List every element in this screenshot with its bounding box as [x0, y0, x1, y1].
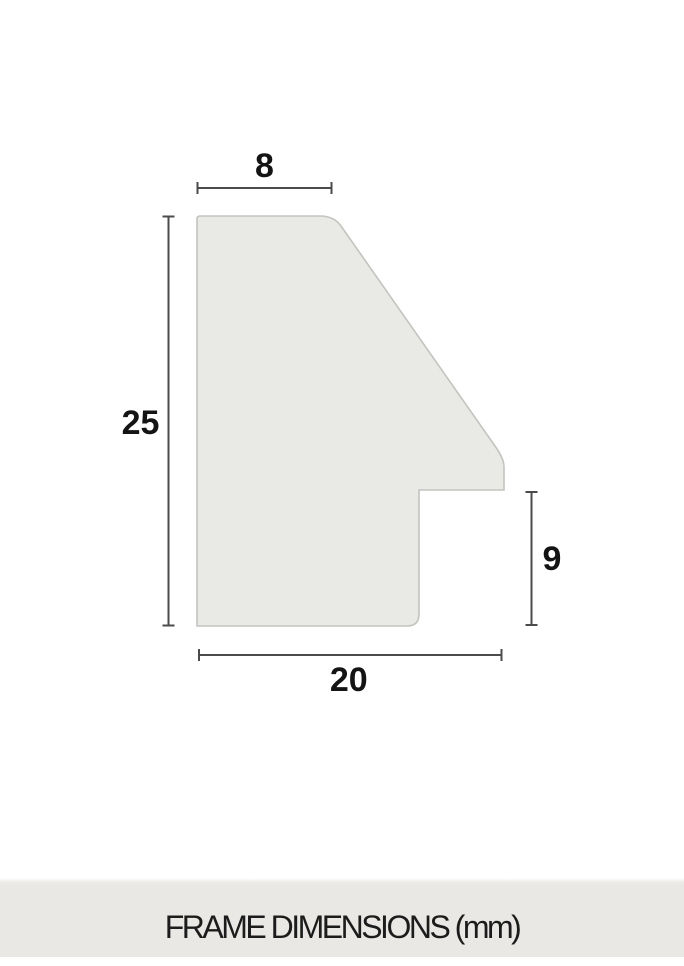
svg-text:20: 20	[330, 661, 368, 699]
svg-text:9: 9	[543, 540, 562, 578]
svg-text:25: 25	[122, 404, 160, 442]
svg-text:8: 8	[255, 147, 274, 185]
